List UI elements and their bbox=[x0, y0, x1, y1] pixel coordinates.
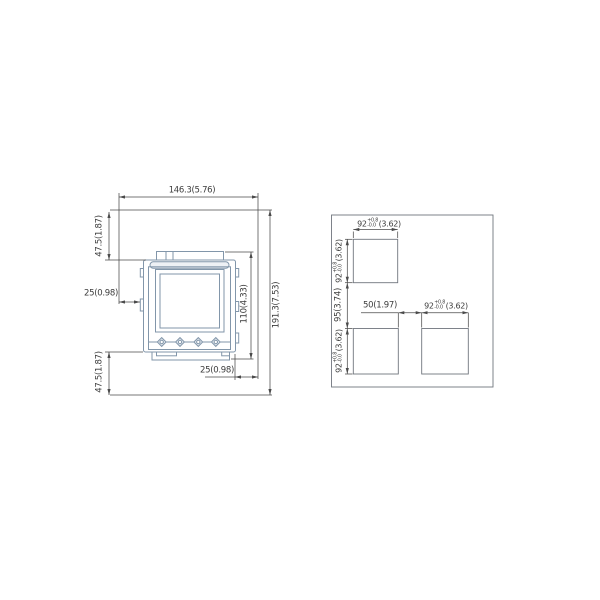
mount-tab bbox=[236, 302, 239, 312]
dim-overall-height: 191.3(7.53) bbox=[273, 282, 282, 329]
dim-overall-width: 146.3(5.76) bbox=[169, 187, 216, 196]
mount-tab bbox=[140, 269, 143, 278]
panel-cutout-view bbox=[332, 215, 494, 387]
cutout-bottom-right bbox=[422, 329, 469, 375]
knob-center bbox=[178, 340, 181, 343]
device-rear-top bbox=[157, 252, 224, 261]
device-display bbox=[160, 274, 220, 328]
knob-center bbox=[214, 340, 217, 343]
cutout-bottom-left bbox=[353, 329, 398, 375]
mount-tab bbox=[236, 269, 239, 278]
dim-vertical-spacing: 95(3.74) bbox=[335, 288, 344, 322]
technical-drawing-canvas: 146.3(5.76) 191.3(7.53) 47.5(1.87) 25(0.… bbox=[0, 0, 600, 600]
panel-outline bbox=[332, 215, 494, 387]
dim-horizontal-spacing: 50(1.97) bbox=[363, 302, 397, 311]
dim-bottom-offset: 47.5(1.87) bbox=[96, 351, 105, 392]
mount-tab bbox=[140, 299, 143, 311]
drawing-geometry bbox=[0, 0, 600, 600]
knob-center bbox=[197, 340, 200, 343]
dim-left-offset: 25(0.98) bbox=[84, 290, 118, 299]
device-front-view bbox=[140, 252, 238, 361]
dim-cutout-width-top: 92+0.8-0.0(3.62) bbox=[357, 219, 401, 228]
knob-center bbox=[160, 340, 163, 343]
dim-cutout-height-bottom: 92+0.8-0.0(3.62) bbox=[334, 329, 343, 373]
dim-cutout-height-top: 92+0.8-0.0(3.62) bbox=[334, 239, 343, 283]
dim-top-offset: 47.5(1.87) bbox=[96, 215, 105, 256]
dim-right-offset: 25(0.98) bbox=[200, 367, 234, 376]
dim-cutout-width-bottom: 92+0.8-0.0(3.62) bbox=[424, 301, 468, 310]
mount-tab bbox=[236, 333, 239, 343]
cutout-top-left bbox=[353, 239, 397, 282]
dim-body-height: 110(4.33) bbox=[241, 284, 250, 323]
